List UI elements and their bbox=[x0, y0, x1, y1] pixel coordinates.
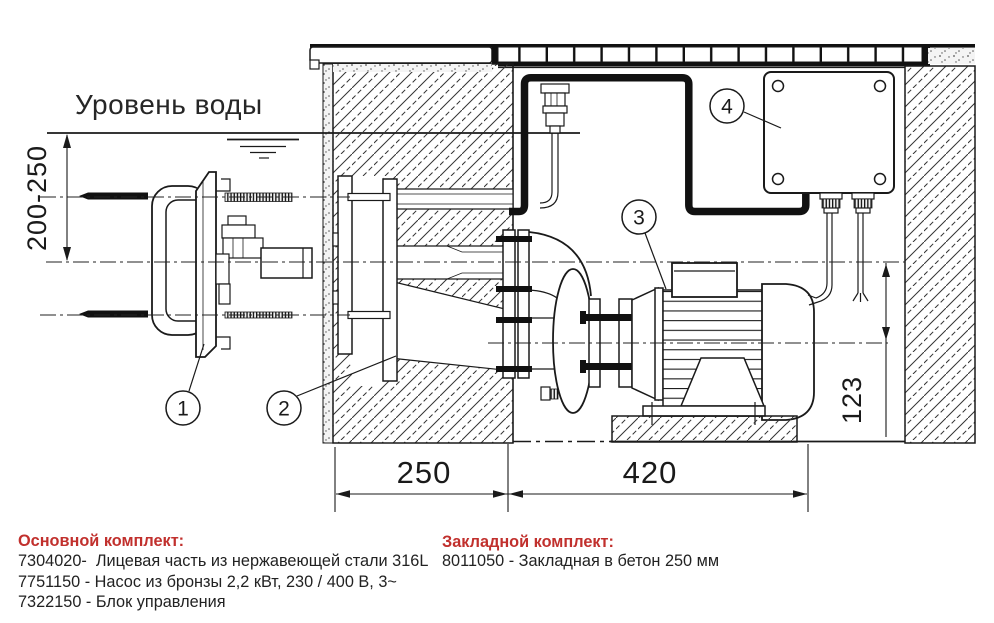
dim-label-420: 420 bbox=[623, 455, 678, 490]
box-screw bbox=[773, 81, 784, 92]
dim-label-250: 250 bbox=[397, 455, 452, 490]
faceplate bbox=[196, 172, 216, 357]
callout-1-number: 1 bbox=[177, 398, 189, 421]
callout-2-number: 2 bbox=[278, 398, 290, 421]
foot-plate bbox=[643, 406, 765, 416]
wall-mortar-band bbox=[333, 64, 492, 72]
wall-plaster-strip bbox=[323, 64, 333, 443]
callout-4-number: 4 bbox=[721, 96, 733, 119]
flange-cavity bbox=[352, 176, 383, 386]
concrete-base bbox=[612, 416, 797, 442]
water-level-label: Уровень воды bbox=[75, 89, 263, 120]
fixing-screw-bottom bbox=[88, 311, 148, 318]
embedded-rear-flange bbox=[383, 179, 397, 381]
wall-flange-a bbox=[503, 230, 515, 378]
wall-flange-b bbox=[518, 230, 529, 378]
deck-soffit-band bbox=[498, 62, 922, 67]
pump-volute bbox=[553, 269, 593, 413]
mains-cable bbox=[853, 213, 868, 302]
dimension-250-420: 250 420 bbox=[335, 444, 808, 512]
main-kit-header: Основной комплект: bbox=[18, 532, 184, 550]
main-kit-item-3: 7322150 - Блок управления bbox=[18, 593, 226, 611]
motor-supply-cable bbox=[808, 213, 832, 305]
pneumatic-switch-gland bbox=[540, 84, 569, 208]
box-screw bbox=[875, 174, 886, 185]
right-wall-concrete bbox=[905, 66, 975, 443]
embedded-kit-header: Закладной комплект: bbox=[442, 533, 614, 551]
legend: Основной комплект: 7304020- Лицевая част… bbox=[18, 532, 719, 611]
dim-label-200-250: 200-250 bbox=[22, 145, 52, 251]
pool-wall bbox=[323, 64, 513, 443]
coping-stone bbox=[310, 47, 492, 63]
main-kit-item-2: 7751150 - Насос из бронзы 2,2 кВт, 230 /… bbox=[18, 573, 397, 591]
motor-terminal-box bbox=[672, 263, 737, 297]
fixing-screw-top bbox=[88, 193, 148, 200]
nozzle-tube bbox=[261, 248, 312, 278]
callout-3-number: 3 bbox=[633, 207, 645, 230]
dim-label-123: 123 bbox=[837, 376, 867, 424]
cable-sleeve-cutout bbox=[390, 189, 513, 209]
embedded-kit-item-1: 8011050 - Закладная в бетон 250 мм bbox=[442, 552, 719, 570]
box-cable-glands bbox=[820, 193, 874, 213]
deck-mortar-right bbox=[928, 48, 975, 64]
embedded-front-flange bbox=[338, 176, 352, 354]
counterflow-installation-drawing: Уровень воды bbox=[0, 0, 994, 623]
pump-casing-cone bbox=[632, 288, 658, 400]
control-box bbox=[764, 72, 894, 193]
dimension-200-250: 200-250 bbox=[22, 134, 71, 261]
deck-joint bbox=[492, 44, 498, 64]
drawing-canvas: Уровень воды bbox=[0, 0, 994, 623]
main-kit-item-1: 7304020- Лицевая часть из нержавеющей ст… bbox=[18, 552, 428, 570]
mount-hook-top bbox=[216, 179, 230, 191]
coping-drip-edge bbox=[310, 60, 319, 69]
mount-hook-bottom bbox=[216, 337, 230, 349]
deck-tiles bbox=[498, 47, 922, 62]
box-screw bbox=[773, 174, 784, 185]
motor-end-cap bbox=[762, 284, 814, 420]
drain-plug bbox=[541, 387, 550, 400]
box-screw bbox=[875, 81, 886, 92]
